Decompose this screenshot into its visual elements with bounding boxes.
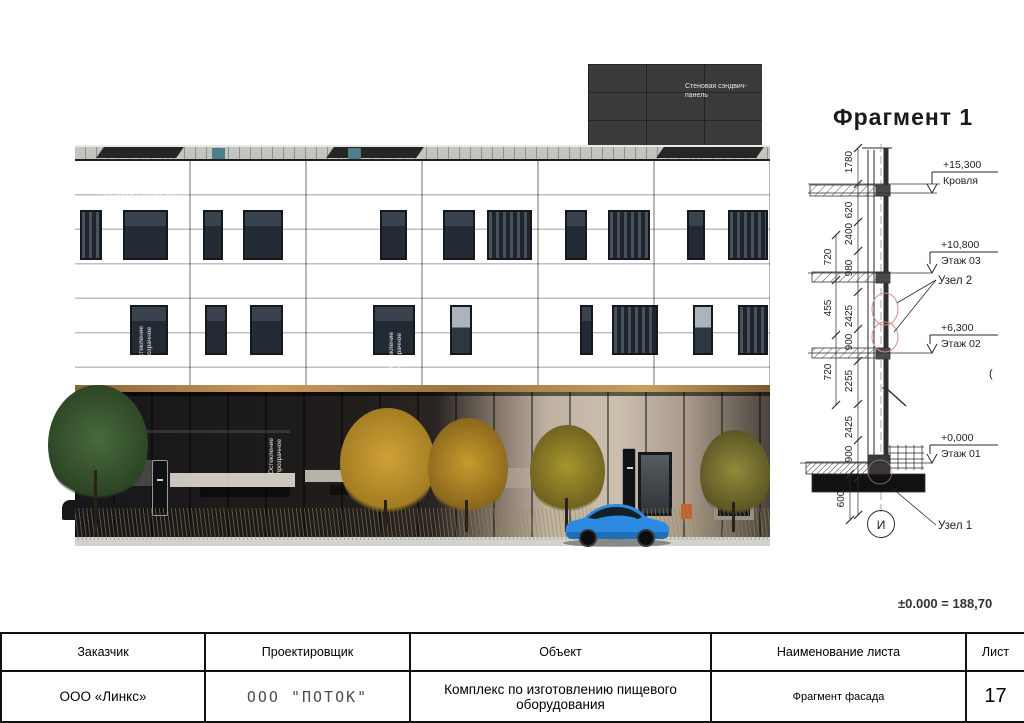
tree-yellow — [428, 418, 508, 518]
window — [80, 210, 102, 260]
window — [565, 210, 587, 260]
level-name: Этаж 03 — [941, 255, 981, 267]
railing — [888, 445, 924, 470]
dim-value: 2425 — [844, 304, 855, 327]
datum-note: ±0.000 = 188,70 — [898, 596, 992, 611]
level-name: Этаж 01 — [941, 448, 981, 460]
node-label: Узел 2 — [938, 275, 972, 287]
tower-panel-label: Стеновая сэндвич-панель — [685, 82, 751, 100]
header-sheet-name: Наименование листа — [711, 633, 966, 671]
tree-yellow — [340, 408, 435, 518]
panel-annotation: Стеновая сэндвич-панель — [103, 191, 188, 198]
rooftop-equipment — [96, 147, 184, 158]
blue-car — [558, 494, 676, 548]
window — [687, 210, 705, 260]
drawing-sheet: Стеновая сэндвич-панель Стеновая сэндвич… — [0, 0, 1024, 723]
node-label: Узел 1 — [938, 520, 972, 532]
tree-trunk — [465, 500, 468, 532]
dim-value: 455 — [823, 299, 834, 316]
tree-trunk — [94, 470, 97, 532]
dim-value: 1780 — [844, 150, 855, 173]
level-elevation: +10,800 — [941, 239, 979, 251]
axis-letter: И — [877, 518, 886, 532]
level-elevation: +6,300 — [941, 322, 974, 334]
glazing-annotation: Остекление прозрачное — [388, 306, 406, 368]
sheet-number: 17 — [966, 671, 1024, 722]
header-sheet-number: Лист — [966, 633, 1024, 671]
elevation-marks — [927, 172, 998, 463]
wall-section — [862, 148, 892, 475]
rooftop-tower: Стеновая сэндвич-панель — [588, 64, 762, 148]
tree-olive — [700, 430, 770, 520]
interior-furniture — [200, 487, 290, 497]
designer-logo: ООО "ПОТОК" — [205, 671, 410, 722]
dim-value: 600 — [836, 490, 847, 507]
dim-value: 2425 — [844, 415, 855, 438]
object-name: Комплекс по изготовлению пищевого оборуд… — [410, 671, 711, 722]
dim-value: 2400 — [844, 222, 855, 245]
header-object: Объект — [410, 633, 711, 671]
window — [443, 210, 475, 260]
glazing-annotation: Остекление прозрачное — [268, 412, 286, 474]
dim-value: 900 — [844, 333, 855, 350]
header-customer: Заказчик — [1, 633, 205, 671]
level-elevation: +15,300 — [943, 159, 981, 171]
window — [580, 305, 593, 355]
fragment-section-drawing: +15,300 Кровля +10,800 Этаж 03 +6,300 Эт… — [800, 100, 1024, 630]
level-name: Кровля — [943, 175, 978, 187]
window — [693, 305, 713, 355]
tree-green — [48, 385, 148, 505]
window — [612, 305, 658, 355]
floor-slabs — [806, 184, 940, 492]
window — [203, 210, 223, 260]
customer-name: ООО «Линкс» — [1, 671, 205, 722]
rooftop-equipment — [212, 148, 225, 159]
dim-value: 720 — [823, 363, 834, 380]
rooftop-equipment — [348, 148, 361, 159]
rooftop-equipment — [326, 147, 424, 158]
tree-trunk — [732, 502, 735, 532]
window — [380, 210, 407, 260]
window — [250, 305, 283, 355]
dim-value: 720 — [823, 248, 834, 265]
rooftop-equipment — [656, 147, 764, 158]
panel-annotation: Стеновая сэндвич-панель — [321, 273, 406, 280]
dim-value: 900 — [844, 445, 855, 462]
glazing-annotation: Остекление прозрачное — [138, 300, 156, 362]
window — [123, 210, 168, 260]
header-designer: Проектировщик — [205, 633, 410, 671]
level-name: Этаж 02 — [941, 338, 981, 350]
window — [608, 210, 650, 260]
interior-light-strip — [170, 473, 295, 487]
dim-value: 980 — [844, 259, 855, 276]
panel-annotation: Стеновая сэндвич-панель — [101, 272, 186, 279]
dim-value: 620 — [844, 201, 855, 218]
window — [205, 305, 227, 355]
window — [243, 210, 283, 260]
sheet-name: Фрагмент фасада — [711, 671, 966, 722]
window — [487, 210, 532, 260]
stray-mark: ( — [989, 368, 993, 380]
window — [738, 305, 768, 355]
window — [728, 210, 768, 260]
dim-value: 2255 — [844, 369, 855, 392]
tree-trunk — [384, 500, 387, 532]
level-elevation: +0,000 — [941, 432, 974, 444]
window — [450, 305, 472, 355]
title-block: Заказчик Проектировщик Объект Наименован… — [0, 632, 1024, 723]
facade-light-strip — [75, 385, 770, 392]
